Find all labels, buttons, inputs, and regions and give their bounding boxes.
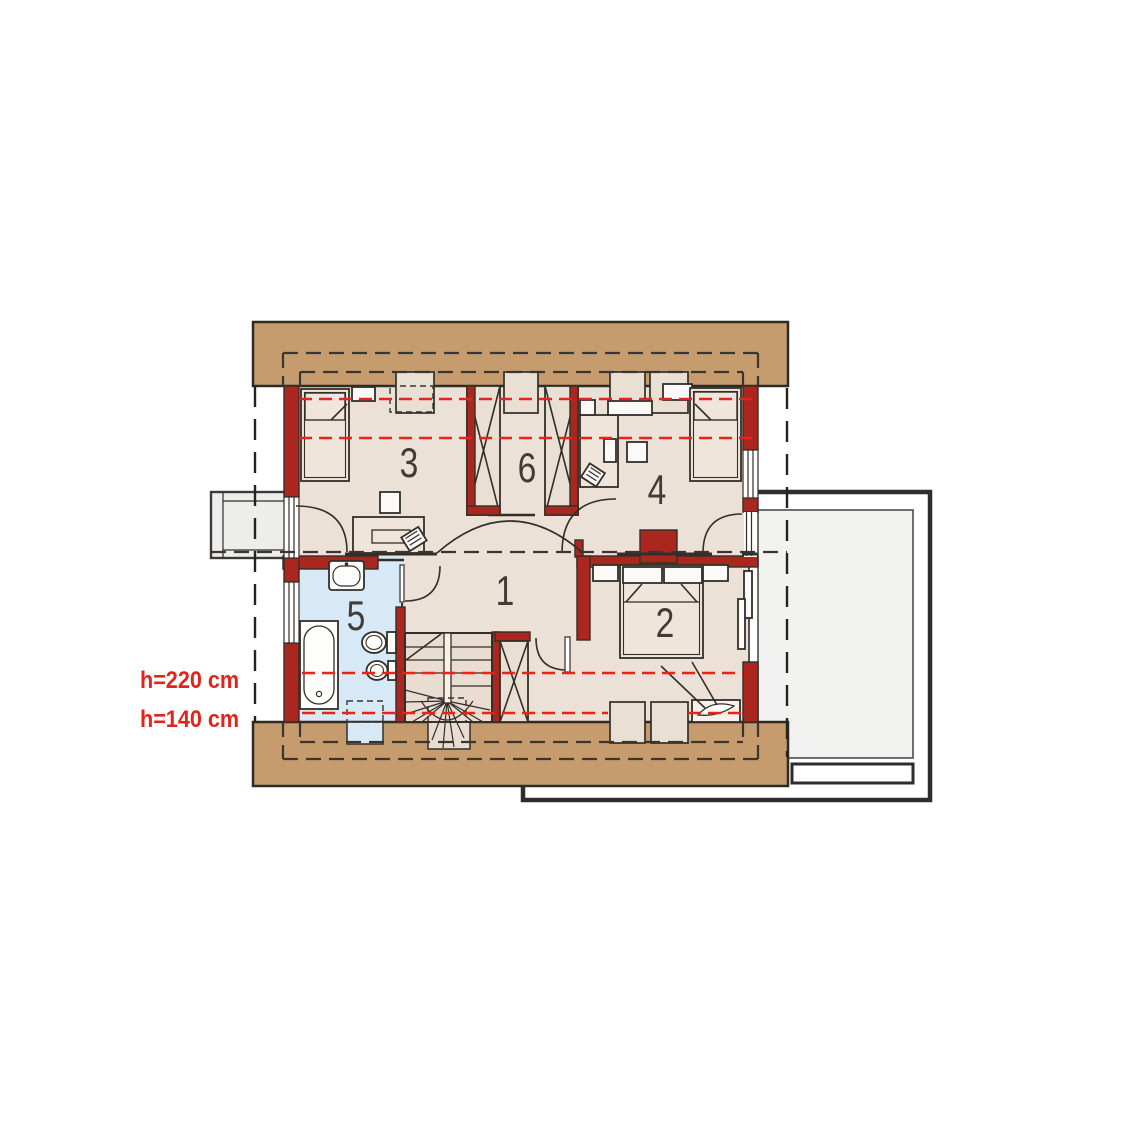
- room4-monitor: [604, 439, 616, 462]
- bathroom-niche: [347, 722, 383, 744]
- room-1-label: 1: [496, 569, 515, 615]
- roof-window: [651, 702, 688, 743]
- roof-window: [610, 702, 645, 743]
- wall-stairs-right: [492, 632, 500, 722]
- nightstand-left: [593, 565, 618, 581]
- room-4-label: 4: [648, 468, 667, 514]
- wardrobe-corridor: [500, 641, 528, 722]
- room4-side-table: [627, 442, 647, 462]
- nightstand-right: [703, 565, 728, 581]
- wall-closet-cap: [495, 632, 530, 641]
- pillow-left: [623, 567, 662, 583]
- sink: [329, 561, 364, 590]
- wall-right-mid: [743, 498, 758, 512]
- roof-band-bottom: [253, 722, 788, 786]
- room4-shelf: [580, 400, 595, 415]
- window-left-bathroom: [284, 582, 299, 643]
- annotation-h140: h=140 cm: [140, 705, 239, 732]
- terrace-step: [792, 764, 913, 783]
- wardrobe-room6-left: [467, 386, 500, 515]
- room4-cabinet: [608, 401, 652, 415]
- floor-plan-page: 1 2 3 4 5 6 h=220 cm h=140 cm: [0, 0, 1123, 1123]
- door-leaf-bathroom: [400, 565, 404, 602]
- toilet: [362, 632, 396, 653]
- annotation-h220: h=220 cm: [140, 666, 239, 693]
- window-right-room4: [743, 450, 758, 498]
- roof-window: [396, 372, 434, 413]
- wall-room2-left: [577, 556, 590, 640]
- room-5-label: 5: [347, 594, 366, 640]
- wall-right-lower: [743, 662, 758, 722]
- wall-left-lower: [284, 643, 299, 722]
- room-6-label: 6: [518, 446, 537, 492]
- chimney: [640, 530, 677, 563]
- wall-left-mid: [284, 556, 299, 582]
- wall-stub-corridor: [575, 540, 583, 557]
- room4-bed: [690, 388, 741, 481]
- wall-bathroom-stairs: [396, 607, 405, 722]
- door-leaf-room2: [565, 637, 570, 672]
- room-2-label: 2: [656, 601, 675, 647]
- bidet: [367, 661, 397, 680]
- wall-left-upper: [284, 386, 299, 497]
- floor-plan-drawing: 1 2 3 4 5 6 h=220 cm h=140 cm: [0, 0, 1123, 1123]
- bathtub: [300, 621, 338, 709]
- roof-window: [504, 372, 538, 413]
- room3-monitor: [380, 492, 400, 513]
- wall-right-upper: [743, 386, 758, 450]
- stair-divider: [444, 633, 451, 703]
- wardrobe-room6-right: [545, 386, 578, 515]
- pillow-right: [664, 567, 702, 583]
- room4-cabinet2: [663, 384, 692, 400]
- room-3-label: 3: [400, 441, 419, 487]
- room3-bed: [301, 389, 349, 481]
- dormer-window-left: [211, 492, 288, 558]
